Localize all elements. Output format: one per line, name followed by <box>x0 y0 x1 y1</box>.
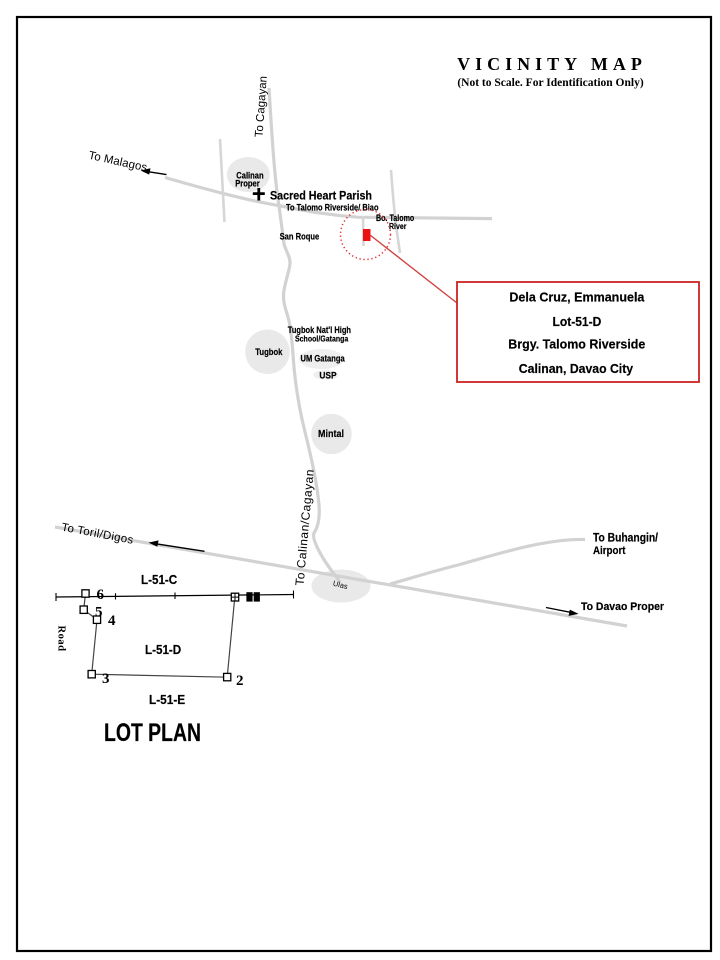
svg-text:2: 2 <box>236 673 244 689</box>
svg-text:Mintal: Mintal <box>318 429 344 440</box>
svg-text:Dela Cruz, Emmanuela: Dela Cruz, Emmanuela <box>509 289 645 304</box>
svg-text:5: 5 <box>95 605 103 621</box>
svg-text:School/Gatanga: School/Gatanga <box>295 334 349 344</box>
svg-text:UM Gatanga: UM Gatanga <box>301 353 346 363</box>
svg-text:VICINITY MAP: VICINITY MAP <box>457 54 647 74</box>
svg-text:L-51-C: L-51-C <box>141 572 178 587</box>
svg-text:L-51-D: L-51-D <box>145 642 181 657</box>
svg-text:San Roque: San Roque <box>280 231 320 241</box>
svg-text:To Talomo Riverside/ Biao: To Talomo Riverside/ Biao <box>286 203 379 213</box>
svg-text:To Davao Proper: To Davao Proper <box>581 601 665 613</box>
svg-text:Calinan, Davao City: Calinan, Davao City <box>519 361 634 376</box>
svg-text:Proper: Proper <box>235 178 260 188</box>
svg-text:Tugbok: Tugbok <box>255 347 283 357</box>
svg-text:4: 4 <box>108 613 116 629</box>
svg-text:Road: Road <box>56 626 67 652</box>
svg-text:3: 3 <box>102 671 110 687</box>
svg-text:(Not to Scale. For Identificat: (Not to Scale. For Identification Only) <box>457 77 643 89</box>
svg-text:Brgy. Talomo Riverside: Brgy. Talomo Riverside <box>508 337 645 352</box>
svg-text:LOT PLAN: LOT PLAN <box>104 719 201 747</box>
svg-text:Sacred Heart Parish: Sacred Heart Parish <box>270 189 372 203</box>
svg-text:Lot-51-D: Lot-51-D <box>553 314 602 329</box>
svg-text:6: 6 <box>97 587 105 603</box>
svg-text:Airport: Airport <box>593 545 626 557</box>
svg-text:USP: USP <box>319 371 336 381</box>
svg-text:L-51-E: L-51-E <box>149 692 185 707</box>
svg-text:River: River <box>389 221 407 231</box>
svg-text:To Buhangin/: To Buhangin/ <box>593 531 659 544</box>
